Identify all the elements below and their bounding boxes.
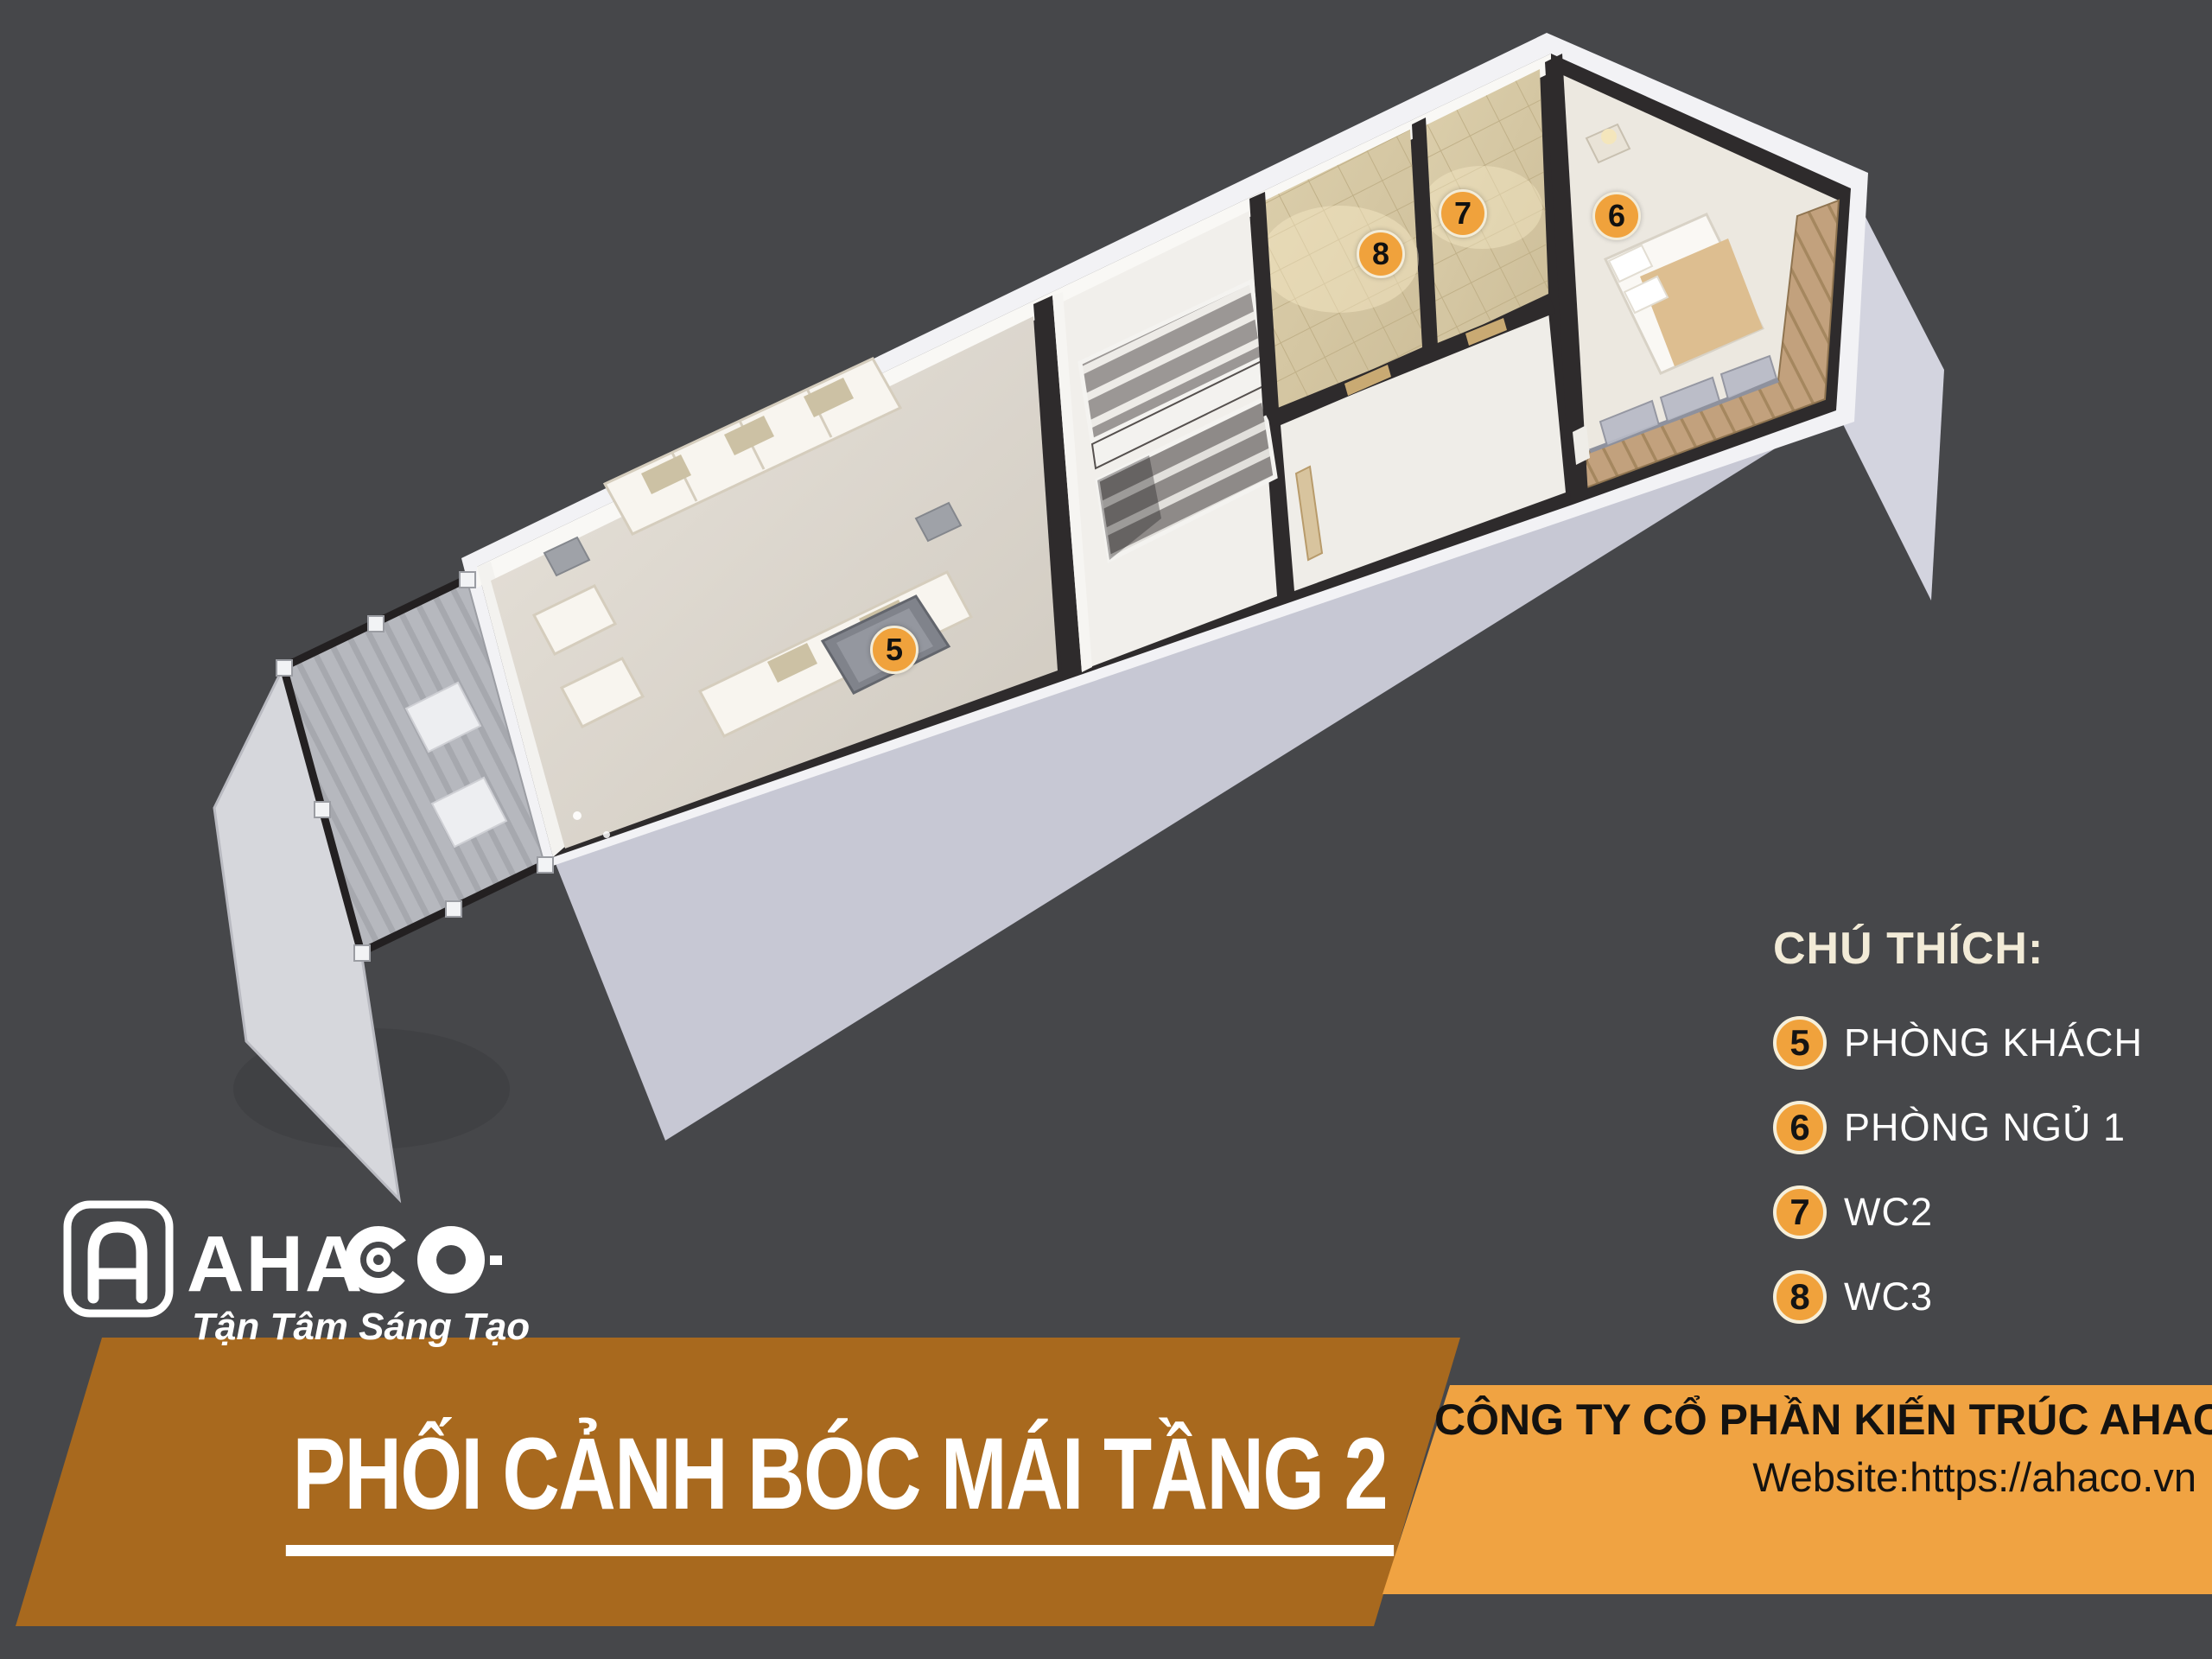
marker-bedroom-1: 6 bbox=[1592, 192, 1641, 240]
legend-item-label: PHÒNG KHÁCH bbox=[1844, 1020, 2143, 1065]
legend: CHÚ THÍCH: 5 PHÒNG KHÁCH 6 PHÒNG NGỦ 1 7… bbox=[1773, 923, 2205, 1355]
company-name: CÔNG TY CỔ PHẦN KIẾN TRÚC AHACO bbox=[1434, 1395, 2196, 1445]
legend-item-wc3: 8 WC3 bbox=[1773, 1270, 2205, 1324]
logo-wordmark: AHA bbox=[187, 1220, 364, 1308]
legend-item-label: PHÒNG NGỦ 1 bbox=[1844, 1105, 2126, 1150]
company-website: Website:https://ahaco.vn bbox=[1434, 1453, 2196, 1501]
legend-item-wc2: 7 WC2 bbox=[1773, 1185, 2205, 1239]
logo-a-glyph bbox=[93, 1227, 142, 1298]
page-title: PHỐI CẢNH BÓC MÁI TẦNG 2 bbox=[286, 1415, 1394, 1556]
company-info: CÔNG TY CỔ PHẦN KIẾN TRÚC AHACO Website:… bbox=[1434, 1395, 2209, 1501]
legend-number-badge: 5 bbox=[1773, 1016, 1827, 1070]
marker-wc2: 7 bbox=[1439, 189, 1487, 238]
logo-tagline: Tận Tâm Sáng Tạo bbox=[192, 1306, 530, 1348]
legend-number-badge: 6 bbox=[1773, 1101, 1827, 1154]
table-lamp bbox=[1601, 129, 1617, 144]
page-title-area: PHỐI CẢNH BÓC MÁI TẦNG 2 bbox=[130, 1415, 1357, 1556]
company-logo: AHA Tận Tâm Sáng Tạo bbox=[60, 1196, 579, 1360]
logo-frame bbox=[67, 1205, 169, 1313]
legend-number-badge: 8 bbox=[1773, 1270, 1827, 1324]
marker-living-room: 5 bbox=[870, 626, 918, 674]
marker-wc3: 8 bbox=[1357, 230, 1405, 278]
logo-o-glyph bbox=[417, 1226, 502, 1294]
legend-number-badge: 7 bbox=[1773, 1185, 1827, 1239]
legend-title: CHÚ THÍCH: bbox=[1773, 923, 2205, 975]
legend-item-bedroom-1: 6 PHÒNG NGỦ 1 bbox=[1773, 1101, 2205, 1154]
slide: 5 6 7 8 CHÚ THÍCH: 5 PHÒNG KHÁCH 6 PHÒNG… bbox=[0, 0, 2212, 1659]
legend-item-label: WC3 bbox=[1844, 1274, 1933, 1319]
legend-item-living-room: 5 PHÒNG KHÁCH bbox=[1773, 1016, 2205, 1070]
ahaco-logo-icon: AHA Tận Tâm Sáng Tạo bbox=[60, 1196, 579, 1356]
legend-item-label: WC2 bbox=[1844, 1190, 1933, 1235]
